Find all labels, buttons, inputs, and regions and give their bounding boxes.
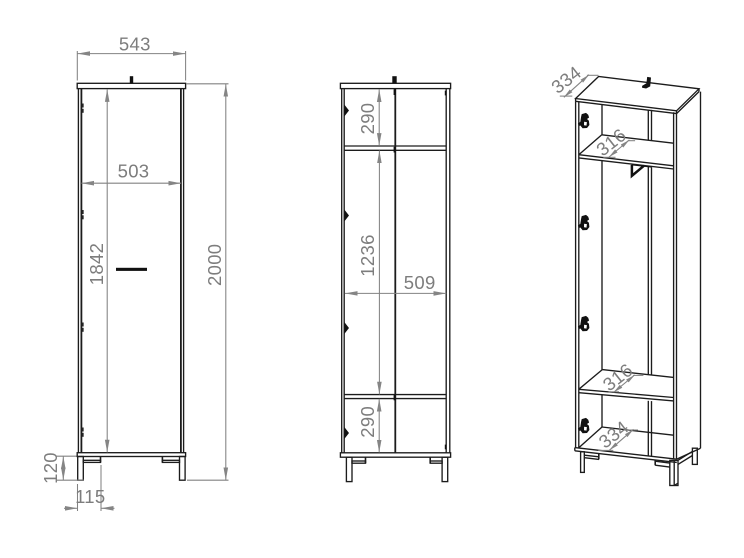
svg-text:290: 290 (357, 103, 378, 135)
svg-text:334: 334 (547, 62, 585, 98)
svg-text:1236: 1236 (357, 234, 378, 276)
svg-text:543: 543 (119, 34, 151, 55)
svg-text:503: 503 (118, 161, 150, 182)
svg-text:115: 115 (75, 486, 105, 507)
svg-text:316: 316 (599, 359, 637, 395)
svg-text:2000: 2000 (204, 244, 225, 286)
svg-text:316: 316 (592, 124, 630, 160)
svg-text:290: 290 (357, 406, 378, 438)
svg-text:1842: 1842 (86, 243, 107, 285)
svg-text:509: 509 (404, 272, 436, 293)
svg-text:334: 334 (595, 416, 633, 452)
svg-text:120: 120 (40, 452, 61, 484)
